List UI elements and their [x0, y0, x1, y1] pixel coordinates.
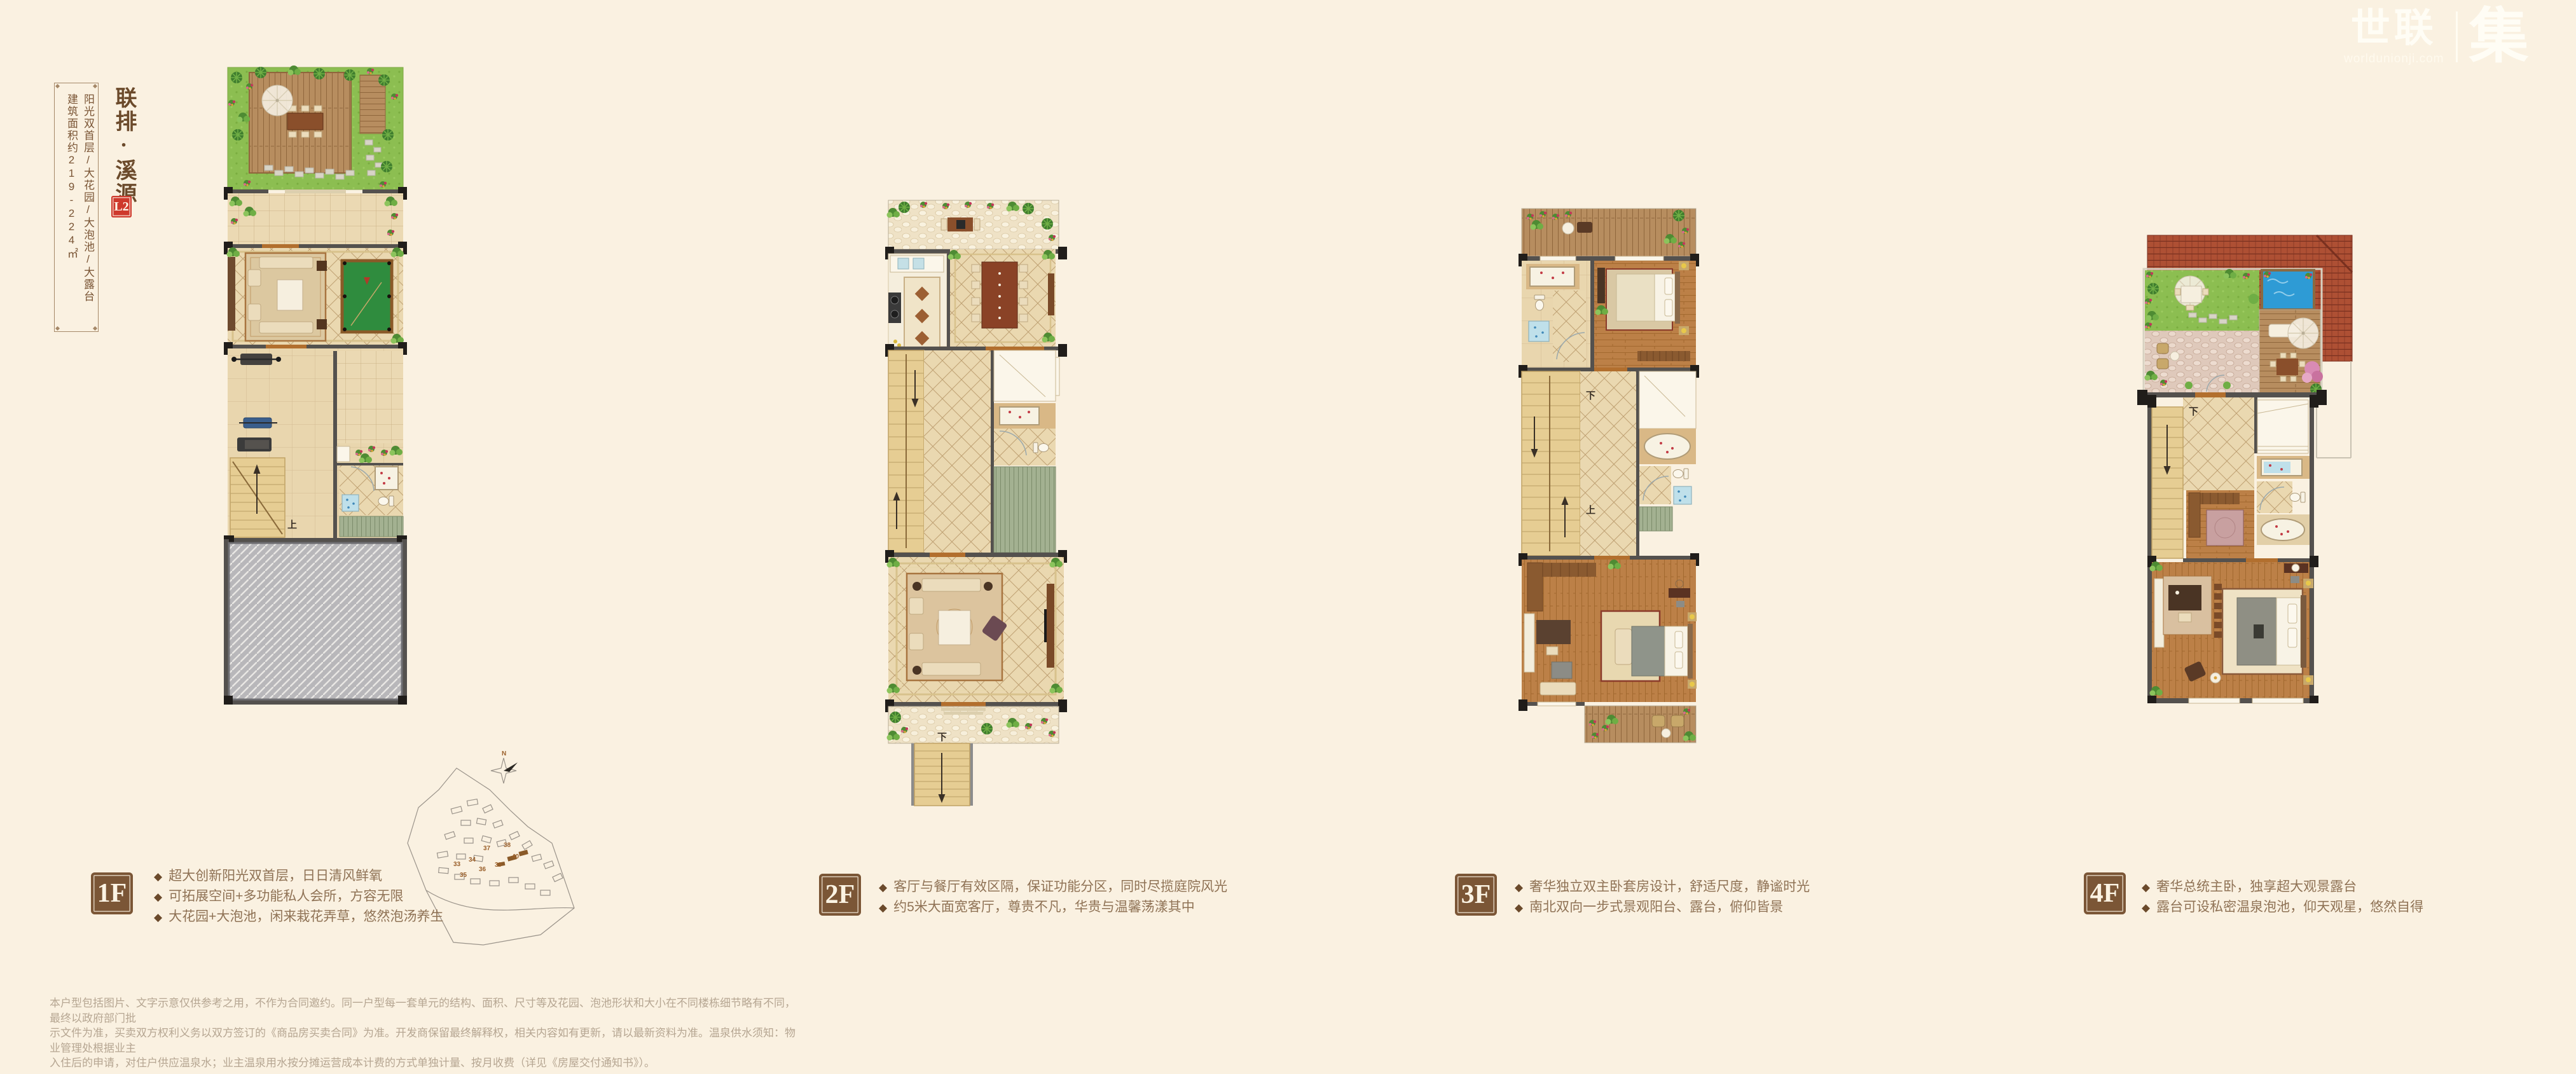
- feature-box: 阳光双首层/大花园/大泡池/大露台 建筑面积约219-224㎡: [54, 83, 99, 332]
- bedroom-a-3f: [1594, 261, 1696, 368]
- bedroom-b-3f: [1522, 560, 1697, 702]
- umbrella-icon: [262, 85, 293, 116]
- terrace-2f: [887, 200, 1059, 249]
- bullet-text: 奢华总统主卧，独享超大观景露台: [2156, 877, 2357, 897]
- disclaimer-line: 入住后的申请，对住户供应温泉水；业主温泉用水按分摊运营成本计费的方式单独计量、按…: [50, 1056, 803, 1071]
- rug: [2207, 510, 2243, 546]
- roof-garden-4f: [2145, 269, 2259, 331]
- disclaimer-line: 本户型包括图片、文字示意仅供参考之用，不作为合同邀约。同一户型每一套单元的结构、…: [50, 996, 803, 1026]
- master-bath-3f: [1522, 261, 1590, 368]
- deck-table: [2276, 359, 2298, 375]
- floor-badge-2f: 2F: [819, 874, 861, 916]
- floor-bullets-2f: ◆客厅与餐厅有效区隔，保证功能分区，同时尽揽庭院风光 ◆约5米大面宽客厅，尊贵不…: [879, 877, 1227, 918]
- svg-text:下: 下: [1586, 390, 1595, 401]
- wardrobe: [1637, 351, 1690, 361]
- coffee-table: [939, 610, 970, 645]
- sofa: [1540, 682, 1576, 695]
- sideboard: [1048, 273, 1054, 315]
- compass-icon: N: [491, 750, 518, 783]
- floor-plan-2f: 下 上: [885, 198, 1067, 808]
- bathroom-1f: [337, 463, 403, 537]
- bullet-text: 客厅与餐厅有效区隔，保证功能分区，同时尽揽庭院风光: [893, 877, 1227, 897]
- brand-name-2: 集: [2469, 6, 2529, 67]
- stairs-2f: [888, 350, 924, 553]
- closet-4f: [2186, 490, 2254, 558]
- svg-text:上: 上: [287, 520, 297, 530]
- svg-text:37: 37: [483, 845, 491, 852]
- living-room-2f: [887, 557, 1064, 702]
- front-terrace-2f: [887, 706, 1059, 743]
- svg-text:下: 下: [937, 732, 947, 743]
- deck-terrace-3f: [1522, 209, 1696, 256]
- patio-1f: [228, 193, 403, 244]
- floor-badge-3f: 3F: [1455, 874, 1497, 916]
- floor-plan-1f: 上: [224, 59, 407, 705]
- disclaimer-line: 示文件为准，买卖双方权利义务以双方签订的《商品房买卖合同》为准。开发商保留最终解…: [50, 1026, 803, 1056]
- stone-terrace-4f: [2145, 331, 2260, 392]
- feature-text: 阳光双首层/大花园/大泡池/大露台: [79, 93, 96, 331]
- garden-1f: [228, 65, 403, 189]
- lounge-chair: [1577, 222, 1592, 233]
- dressing-table: [1669, 588, 1690, 598]
- brand-domain: worldunionji.com: [2344, 52, 2444, 66]
- sofa: [259, 257, 313, 268]
- entry-stairs-2f: [911, 743, 973, 806]
- roof-deck-4f: [2259, 310, 2323, 395]
- svg-text:40: 40: [512, 853, 520, 860]
- brochure-canvas: 世联 worldunionji.com 集 联排·溪源 L2 阳光双首层/大花园…: [0, 0, 2576, 1074]
- bullet-text: 可拓展空间+多功能私人会所，方容无限: [169, 886, 403, 906]
- dresser: [1597, 268, 1605, 303]
- stairs-4f: [2152, 407, 2183, 558]
- master-bedroom-4f: [2150, 561, 2314, 698]
- stairs-3f: [1522, 371, 1580, 556]
- bullet-text: 超大创新阳光双首层，日日清风鲜氧: [169, 866, 382, 886]
- site-buildings: [437, 799, 563, 895]
- bullet-text: 南北双向一步式景观阳台、露台，俯仰皆景: [1529, 897, 1783, 917]
- brand-name: 世联: [2351, 8, 2437, 50]
- diamond-bullet-icon: ◆: [154, 867, 162, 886]
- bed: [1632, 626, 1665, 676]
- tv-cabinet: [1047, 584, 1054, 668]
- bed: [1616, 274, 1655, 321]
- hall-2f: [924, 350, 991, 553]
- area-text: 建筑面积约219-224㎡: [63, 93, 79, 331]
- dining-room-2f: [948, 249, 1056, 347]
- floor-badge-1f: 1F: [91, 872, 133, 914]
- audio-table: [1552, 662, 1572, 678]
- svg-text:34: 34: [469, 857, 476, 864]
- svg-text:下: 下: [2189, 406, 2198, 417]
- balcony-3f: [1585, 706, 1696, 743]
- svg-text:39: 39: [495, 862, 502, 869]
- floor-plan-3f: 下 上: [1519, 207, 1699, 744]
- desk: [1536, 620, 1571, 644]
- logo-divider: [2456, 11, 2458, 62]
- svg-text:36: 36: [479, 866, 486, 873]
- gym-1f: 上: [228, 348, 403, 538]
- svg-text:38: 38: [504, 842, 511, 849]
- bathroom-2f: [994, 403, 1056, 553]
- spa-pool-4f: [2262, 270, 2314, 310]
- svg-text:35: 35: [460, 872, 467, 879]
- stairs-1f: [230, 458, 285, 537]
- family-room-1f: [227, 247, 404, 345]
- bullet-text: 大花园+大泡池，闲来栽花弄草，悠然泡汤养生: [169, 907, 443, 926]
- floor-bullets-1f: ◆超大创新阳光双首层，日日清风鲜氧 ◆可拓展空间+多功能私人会所，方容无限 ◆大…: [154, 866, 443, 927]
- unit-type-badge: L2: [111, 196, 132, 217]
- floor-bullets-3f: ◆奢华独立双主卧套房设计，舒适尺度，静谧时光 ◆南北双向一步式景观阳台、露台，俯…: [1515, 877, 1810, 918]
- hall-4f: 下: [2183, 397, 2254, 490]
- svg-text:33: 33: [453, 861, 461, 868]
- brand-logo: 世联 worldunionji.com 集: [2344, 6, 2529, 67]
- bullet-text: 露台可设私密温泉泡池，仰天观星，悠然自得: [2156, 897, 2423, 917]
- garage-slab-1f: [224, 539, 407, 705]
- desk: [2168, 585, 2201, 610]
- bath-b-3f: [1639, 429, 1696, 531]
- svg-text:N: N: [502, 750, 506, 757]
- floor-plan-4f: 下: [2093, 223, 2359, 706]
- svg-text:上: 上: [1586, 505, 1595, 516]
- bathroom-4f: [2257, 456, 2310, 545]
- sofa: [922, 579, 981, 591]
- bullet-text: 奢华独立双主卧套房设计，舒适尺度，静谧时光: [1529, 877, 1810, 897]
- floor-bullets-4f: ◆奢华总统主卧，独享超大观景露台 ◆露台可设私密温泉泡池，仰天观星，悠然自得: [2142, 877, 2423, 918]
- disclaimer: 本户型包括图片、文字示意仅供参考之用，不作为合同邀约。同一户型每一套单元的结构、…: [50, 996, 803, 1071]
- garden-table: [287, 113, 323, 130]
- billiard-table: [342, 261, 392, 332]
- bullet-text: 约5米大面宽客厅，尊贵不凡，华贵与温馨荡漾其中: [893, 897, 1195, 917]
- coffee-table: [277, 280, 303, 310]
- floor-badge-4f: 4F: [2084, 872, 2126, 914]
